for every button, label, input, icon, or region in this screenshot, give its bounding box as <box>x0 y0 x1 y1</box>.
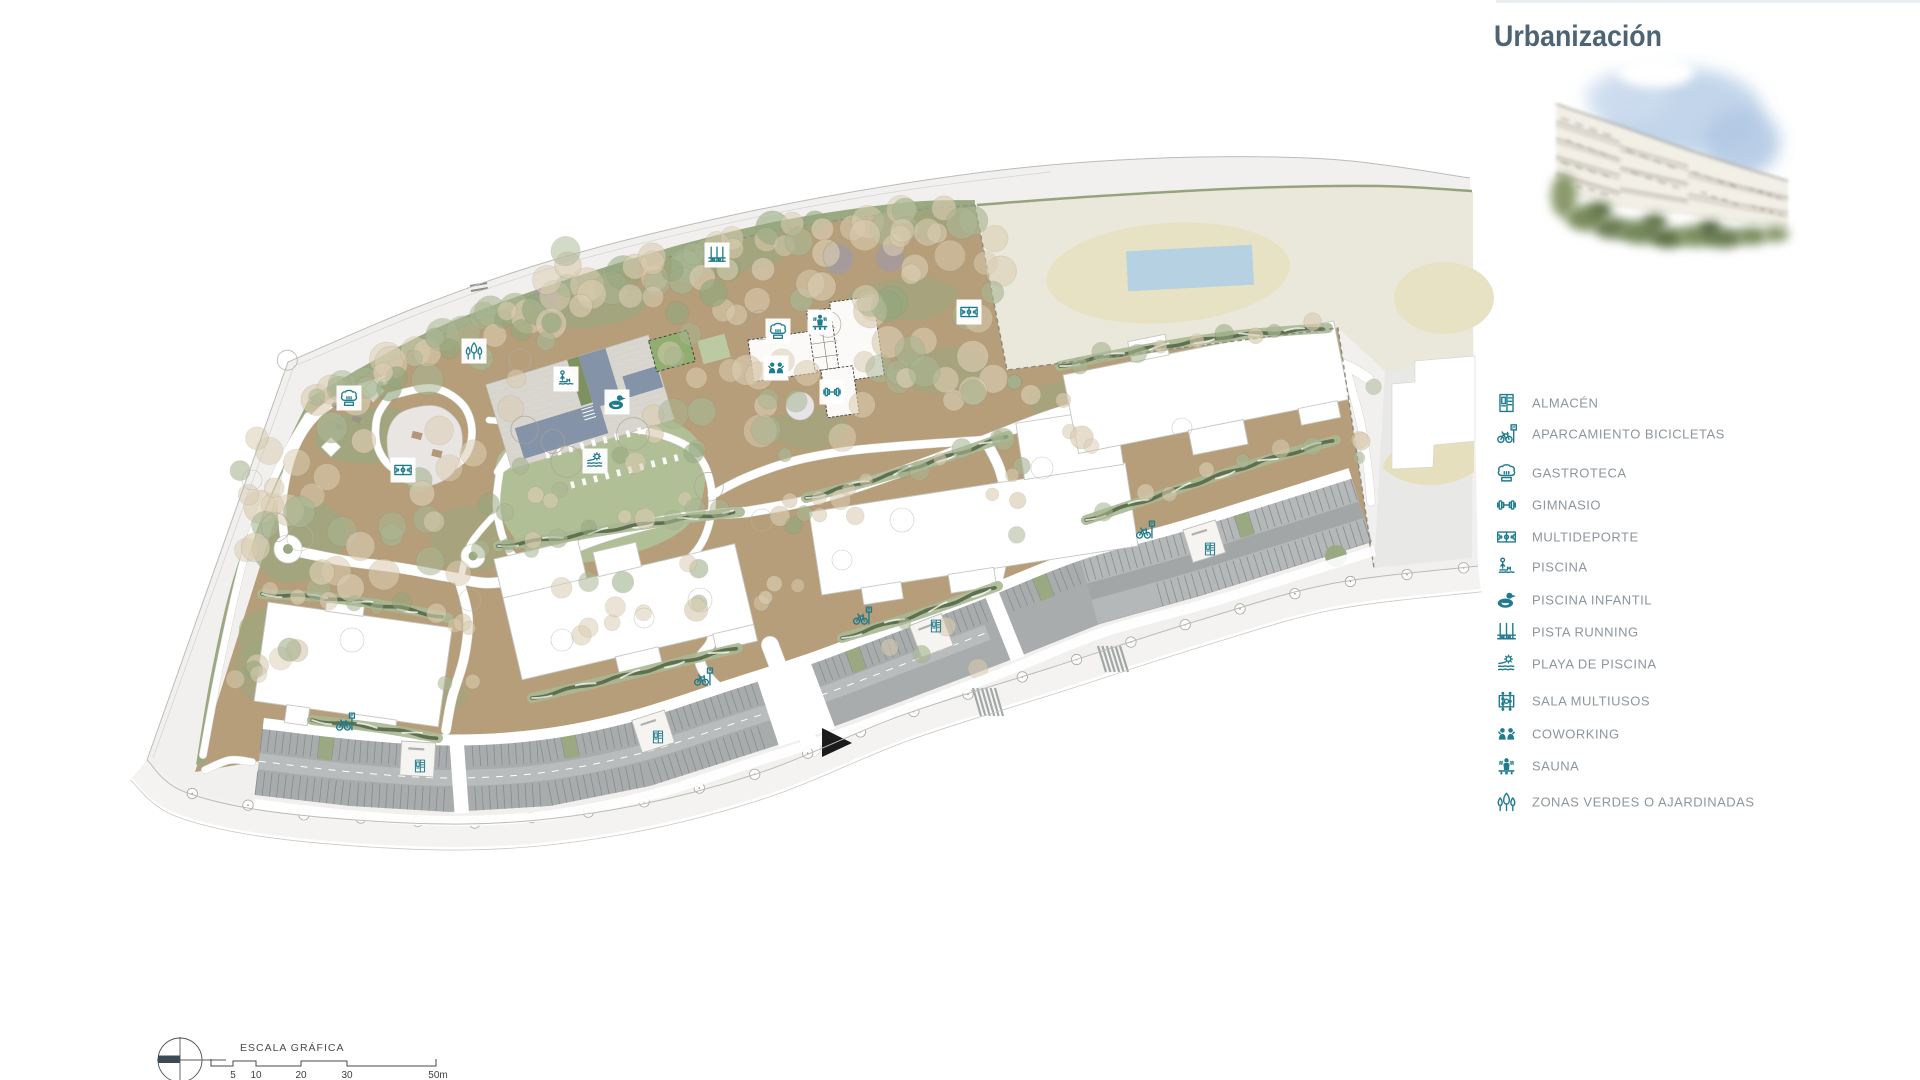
svg-text:50m: 50m <box>428 1070 447 1080</box>
svg-text:GASTROTECA: GASTROTECA <box>1532 466 1627 481</box>
svg-text:SALA MULTIUSOS: SALA MULTIUSOS <box>1532 694 1650 709</box>
svg-text:10: 10 <box>250 1070 262 1080</box>
svg-text:APARCAMIENTO BICICLETAS: APARCAMIENTO BICICLETAS <box>1532 427 1725 442</box>
svg-text:PLAYA DE PISCINA: PLAYA DE PISCINA <box>1532 657 1657 672</box>
svg-text:20: 20 <box>295 1070 307 1080</box>
svg-text:ZONAS VERDES O AJARDINADAS: ZONAS VERDES O AJARDINADAS <box>1532 795 1755 810</box>
svg-text:ALMACÉN: ALMACÉN <box>1532 396 1598 411</box>
svg-text:COWORKING: COWORKING <box>1532 727 1620 742</box>
svg-text:Urbanización: Urbanización <box>1494 20 1662 53</box>
svg-text:5: 5 <box>230 1070 236 1080</box>
svg-text:30: 30 <box>341 1070 353 1080</box>
svg-text:PISCINA: PISCINA <box>1532 560 1588 575</box>
svg-text:PISCINA INFANTIL: PISCINA INFANTIL <box>1532 593 1652 608</box>
svg-text:PISTA RUNNING: PISTA RUNNING <box>1532 625 1639 640</box>
svg-text:ESCALA GRÁFICA: ESCALA GRÁFICA <box>240 1041 344 1054</box>
svg-text:SAUNA: SAUNA <box>1532 759 1579 774</box>
svg-text:GIMNASIO: GIMNASIO <box>1532 498 1601 513</box>
svg-text:MULTIDEPORTE: MULTIDEPORTE <box>1532 530 1639 545</box>
